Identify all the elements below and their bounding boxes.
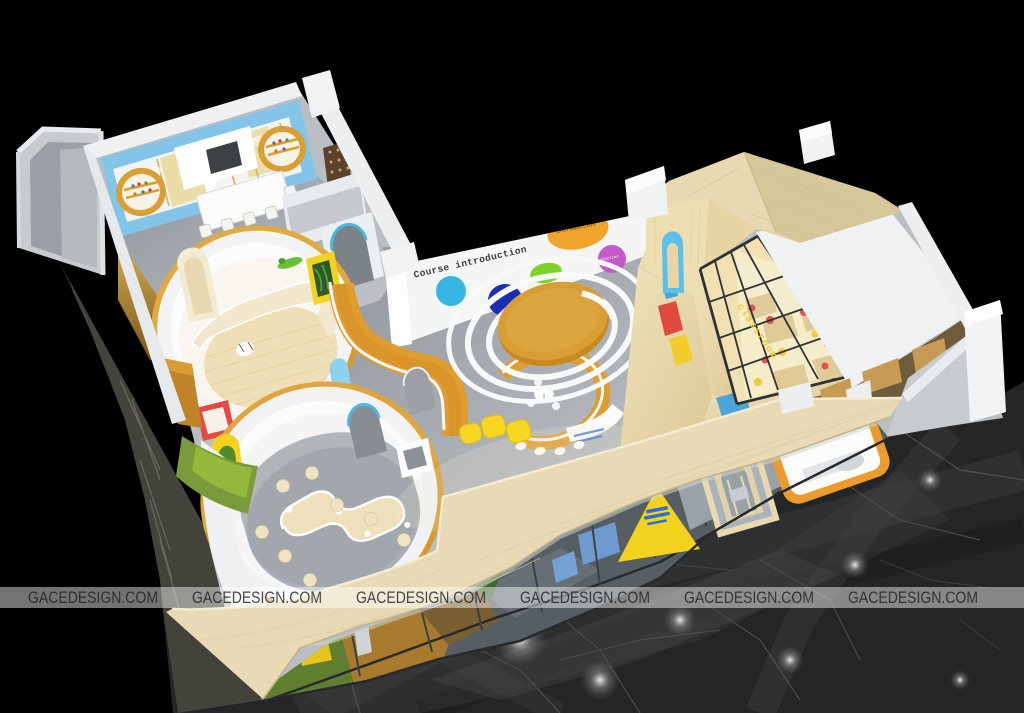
svg-text:GACEDESIGN.COM: GACEDESIGN.COM <box>848 588 978 607</box>
svg-text:GACEDESIGN.COM: GACEDESIGN.COM <box>520 588 650 607</box>
svg-text:GACEDESIGN.COM: GACEDESIGN.COM <box>28 588 158 607</box>
svg-text:GACEDESIGN.COM: GACEDESIGN.COM <box>192 588 322 607</box>
svg-text:GACEDESIGN.COM: GACEDESIGN.COM <box>356 588 486 607</box>
svg-text:GACEDESIGN.COM: GACEDESIGN.COM <box>684 588 814 607</box>
